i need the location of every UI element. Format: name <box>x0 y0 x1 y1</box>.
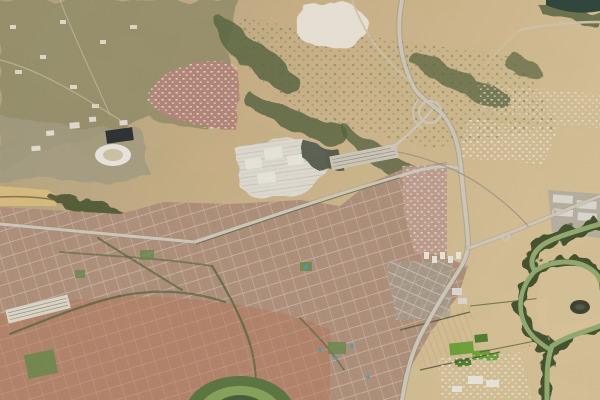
satellite-map-view <box>0 0 600 400</box>
photo-grain-overlay <box>0 0 600 400</box>
satellite-canvas <box>0 0 600 400</box>
